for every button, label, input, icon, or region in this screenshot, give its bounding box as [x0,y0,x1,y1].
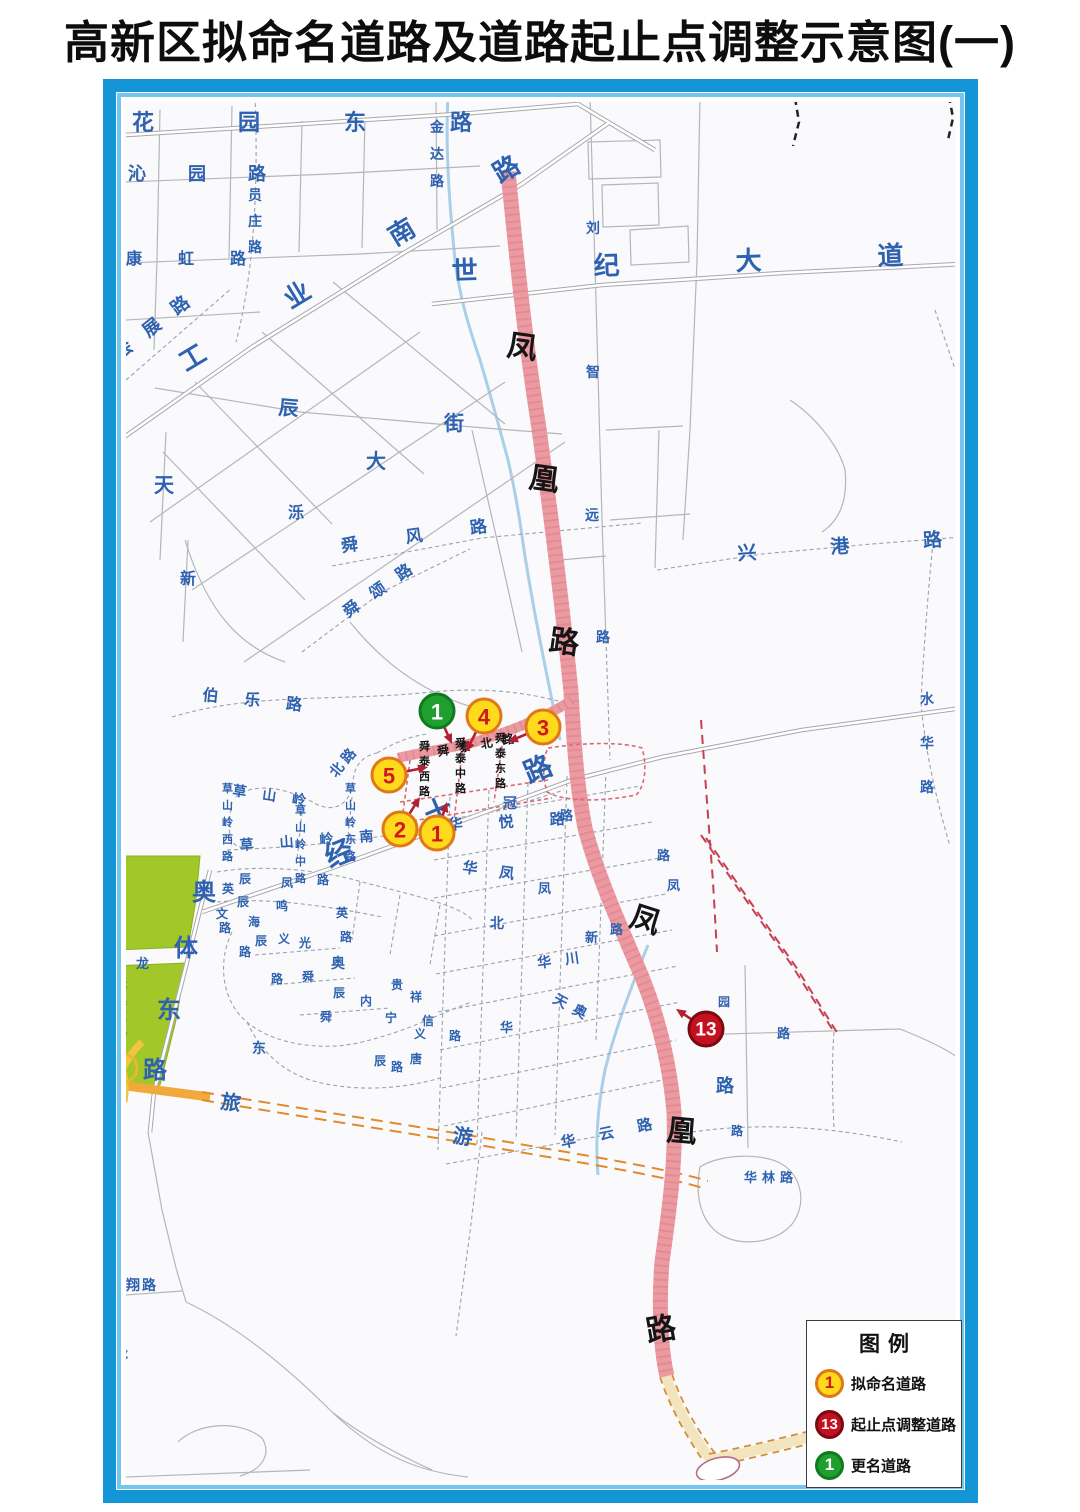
road-label: 华林路 [744,1170,798,1185]
road-label: 路 [271,971,284,986]
marker-number: 1 [431,822,443,847]
road-label: 凤 [281,876,293,890]
road-label: 冠 [503,795,517,811]
road-label: 舜 [320,1009,332,1024]
road-label: 路 [547,624,582,661]
road-label: 英 [222,881,235,896]
legend-green-circle-icon: 1 [815,1451,844,1480]
road-label: 辰 [255,934,267,948]
road-label: 新 [180,569,196,588]
marker-number: 2 [394,818,406,843]
road-label: 舜 [302,969,314,984]
road-label: 祥 [410,989,422,1004]
road-label: 英 [336,905,349,920]
road-label: 金达路 [429,119,445,189]
road-label: 凤 [538,881,551,896]
road-label: 远 [585,507,599,523]
road-label: 东 [157,996,181,1024]
legend-item-label: 更名道路 [851,1455,911,1476]
road-label: 唐 [410,1051,422,1066]
road-label: 辰 [278,397,301,421]
road-label: 草山岭西路 [222,781,234,863]
road-label: 奥 [331,955,346,971]
road-label: 康虹路 [126,249,282,268]
road-label: 凤 [505,329,539,366]
legend-item-adjusted: 13 起止点调整道路 [815,1408,961,1440]
road-label: 沁园路 [128,163,308,184]
road-label: 旅 [219,1089,242,1116]
road-label: 辰 [333,986,345,1000]
road-label: 路 [731,1123,744,1138]
road-label: 水华路 [920,691,935,795]
road-label: 宁 [385,1010,397,1025]
road-label: 凤 [667,878,680,893]
legend-item-label: 拟命名道路 [851,1373,926,1394]
legend-title: 图例 [807,1328,961,1358]
road-label: 大 [366,450,386,473]
road-label: 鸣 [276,898,288,913]
road-label: 路 [596,629,611,645]
road-label: 泺 [288,503,304,522]
road-label: 贵 [391,977,403,992]
marker-number: 4 [478,705,491,730]
road-label: 路 [340,929,353,944]
road-label: 辰 [239,872,251,886]
road-label: 奥 [192,878,217,906]
road-label: 天 [154,475,175,497]
road-label: 路 [560,808,574,823]
legend-box: 图例 1 拟命名道路 13 起止点调整道路 1 更名道路 [806,1320,962,1488]
marker-number: 1 [431,700,443,725]
road-label: 东 [252,1040,266,1056]
road-label: 路 [143,1056,168,1084]
road-label: 刘 [586,220,600,236]
legend-item-renamed: 1 更名道路 [815,1449,961,1481]
road-label: 凰 [527,461,561,498]
road-label: 路 [391,1059,404,1074]
map-canvas: 花园东路沁园路员庄路康虹路会展路工业南路金达路世纪大道刘智远路凤凰路凤凰路辰大街… [0,0,1080,1512]
road-label: 海 [248,914,260,929]
marker-number: 13 [695,1020,716,1041]
road-label: 华 [500,1020,513,1035]
road-label: 义 [413,1026,427,1041]
road-label: 文 [216,906,229,921]
road-label: 义 [277,931,291,946]
road-label: 员庄路 [248,187,263,255]
road-label: 路 [610,922,624,937]
road-label: 内 [360,993,372,1008]
road-label: 智 [585,364,600,380]
road-label: 体 [174,935,199,962]
road-label: 街 [443,411,464,435]
road-label: 路 [219,920,232,935]
legend-red-circle-icon: 13 [815,1410,844,1439]
marker-number: 5 [383,764,395,789]
page: { "title": "高新区拟命名道路及道路起止点调整示意图(一)", "le… [0,0,1080,1512]
legend-item-label: 起止点调整道路 [851,1414,956,1435]
road-label: 游 [451,1123,474,1150]
road-label: 信 [422,1013,434,1028]
road-label: 光 [298,935,311,950]
road-label: 路 [657,848,671,863]
road-label: 辰 [374,1054,386,1068]
road-label: 龙 [136,956,149,971]
legend-yellow-circle-icon: 1 [815,1369,844,1398]
road-label: 花园东路 [132,110,556,135]
road-label: 路 [716,1075,735,1096]
road-label: 园 [718,995,730,1009]
road-label: 路 [449,1028,462,1043]
legend-item-proposed: 1 拟命名道路 [815,1367,961,1399]
road-label: 路 [317,872,330,887]
marker-number: 3 [537,716,549,741]
road-label: 路 [777,1026,791,1041]
road-label: 北 [490,915,504,931]
road-label: 辰 [237,895,249,909]
road-label: 新 [585,930,598,945]
road-label: 路 [239,944,252,959]
